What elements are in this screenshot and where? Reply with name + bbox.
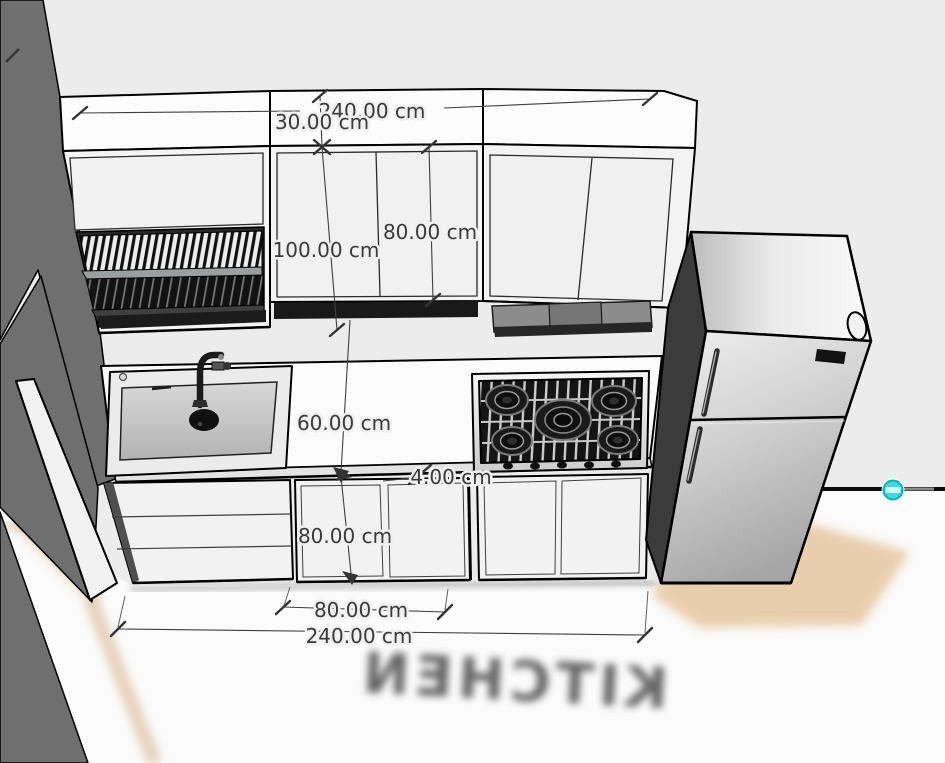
base-drawer-unit[interactable]: [104, 480, 293, 583]
dim-label-backsplash-height[interactable]: 60.00 cm: [297, 411, 391, 435]
burner-center: [535, 400, 591, 440]
burner-front-right: [598, 426, 638, 454]
dim-label-counter-thickness[interactable]: 4.00 cm: [410, 465, 491, 489]
dish-rack: [80, 231, 266, 329]
dim-label-upper-height[interactable]: 80.00 cm: [383, 220, 477, 244]
dim-label-soffit-height[interactable]: 30.00 cm: [275, 110, 369, 134]
gas-cooktop[interactable]: [472, 371, 649, 472]
dim-label-base-width[interactable]: 80.00 cm: [314, 598, 408, 622]
faucet-handle: [223, 362, 231, 370]
burner-front-left: [492, 427, 532, 455]
cabinet-door: [70, 153, 263, 230]
upper-cabinet-left[interactable]: [60, 91, 270, 333]
cabinet-doors: [490, 155, 673, 301]
range-hood[interactable]: [492, 301, 652, 337]
dim-label-base-height[interactable]: 80.00 cm: [298, 524, 392, 548]
burner-back-left: [486, 385, 528, 415]
base-cabinet-right[interactable]: [469, 474, 648, 580]
dim-label-total-width[interactable]: 240.00 cm: [306, 624, 413, 648]
section-widget-icon[interactable]: [882, 479, 905, 502]
upper-cabinet-right[interactable]: [483, 89, 697, 308]
sink-drain: [189, 409, 219, 431]
under-cabinet-band: [274, 301, 478, 319]
burner-back-right: [592, 386, 636, 416]
viewport-3d[interactable]: KITCHEN: [0, 0, 945, 763]
fridge-top: [691, 232, 871, 341]
sink[interactable]: [106, 354, 292, 476]
dim-label-left-upper-height[interactable]: 100.00 cm: [273, 238, 380, 262]
sink-corner-hole: [120, 374, 127, 381]
